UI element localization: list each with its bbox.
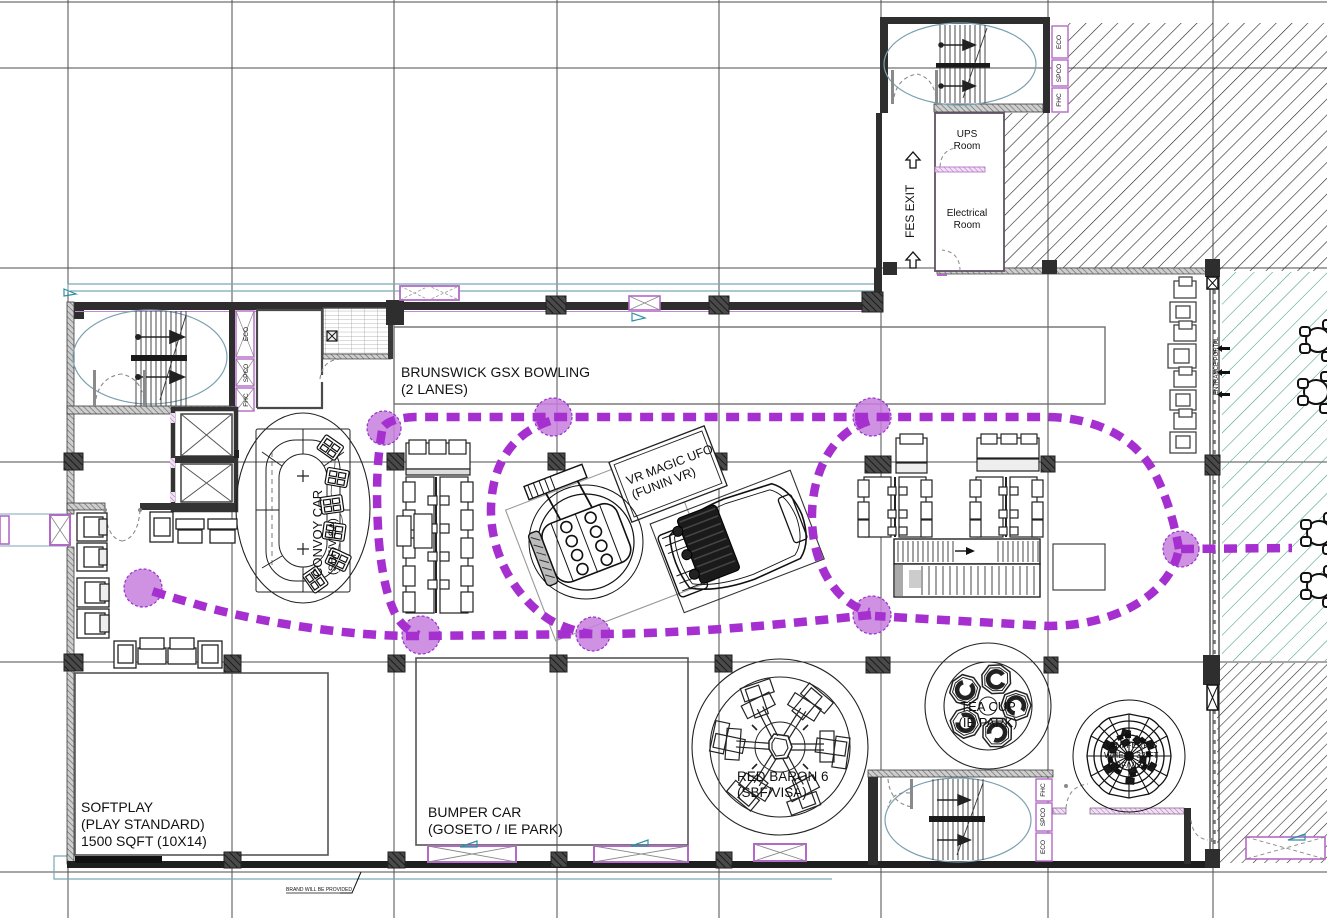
- svg-text:TEA CUP: TEA CUP: [960, 699, 1016, 714]
- svg-text:(IE PARK): (IE PARK): [959, 715, 1018, 730]
- svg-text:WHEEL 32 FT: WHEEL 32 FT: [1104, 750, 1158, 760]
- svg-text:Room: Room: [954, 220, 981, 231]
- svg-text:SPCO: SPCO: [243, 364, 250, 382]
- svg-text:(SBF/VISA): (SBF/VISA): [737, 785, 807, 800]
- svg-text:1500 SQFT (10X14): 1500 SQFT (10X14): [81, 833, 207, 849]
- svg-text:Room: Room: [954, 141, 981, 152]
- svg-text:(SBF/VISA): (SBF/VISA): [1107, 760, 1151, 770]
- svg-text:(2 LANES): (2 LANES): [401, 381, 468, 397]
- svg-text:CONVOY CAR: CONVOY CAR: [310, 490, 325, 577]
- svg-text:BRAND WILL BE PROVIDED: BRAND WILL BE PROVIDED: [286, 887, 352, 893]
- svg-text:(SBF/VISA): (SBF/VISA): [327, 518, 339, 575]
- svg-text:(GOSETO / IE PARK): (GOSETO / IE PARK): [428, 821, 563, 837]
- svg-text:UPS: UPS: [957, 129, 978, 140]
- svg-text:ENTRANCE PORTAL: ENTRANCE PORTAL: [1214, 336, 1220, 395]
- svg-text:FHC: FHC: [243, 393, 250, 407]
- svg-text:(PLAY STANDARD): (PLAY STANDARD): [81, 816, 205, 832]
- svg-text:Electrical: Electrical: [947, 208, 988, 219]
- svg-text:ECO: ECO: [1056, 35, 1063, 49]
- svg-text:RED BARON 6: RED BARON 6: [737, 769, 829, 784]
- svg-text:SPCO: SPCO: [1056, 64, 1063, 82]
- svg-text:MINI FERRIS: MINI FERRIS: [1106, 740, 1158, 750]
- svg-text:SPCO: SPCO: [1040, 808, 1047, 826]
- svg-text:ECO: ECO: [243, 327, 250, 341]
- svg-text:SOFTPLAY: SOFTPLAY: [81, 799, 154, 815]
- svg-text:BRUNSWICK GSX BOWLING: BRUNSWICK GSX BOWLING: [401, 364, 590, 380]
- svg-text:FHC: FHC: [1056, 93, 1063, 107]
- svg-text:BUMPER CAR: BUMPER CAR: [428, 804, 521, 820]
- svg-text:ECO: ECO: [1040, 840, 1047, 854]
- svg-text:FES EXIT: FES EXIT: [903, 184, 917, 238]
- svg-text:FHC: FHC: [1040, 783, 1047, 797]
